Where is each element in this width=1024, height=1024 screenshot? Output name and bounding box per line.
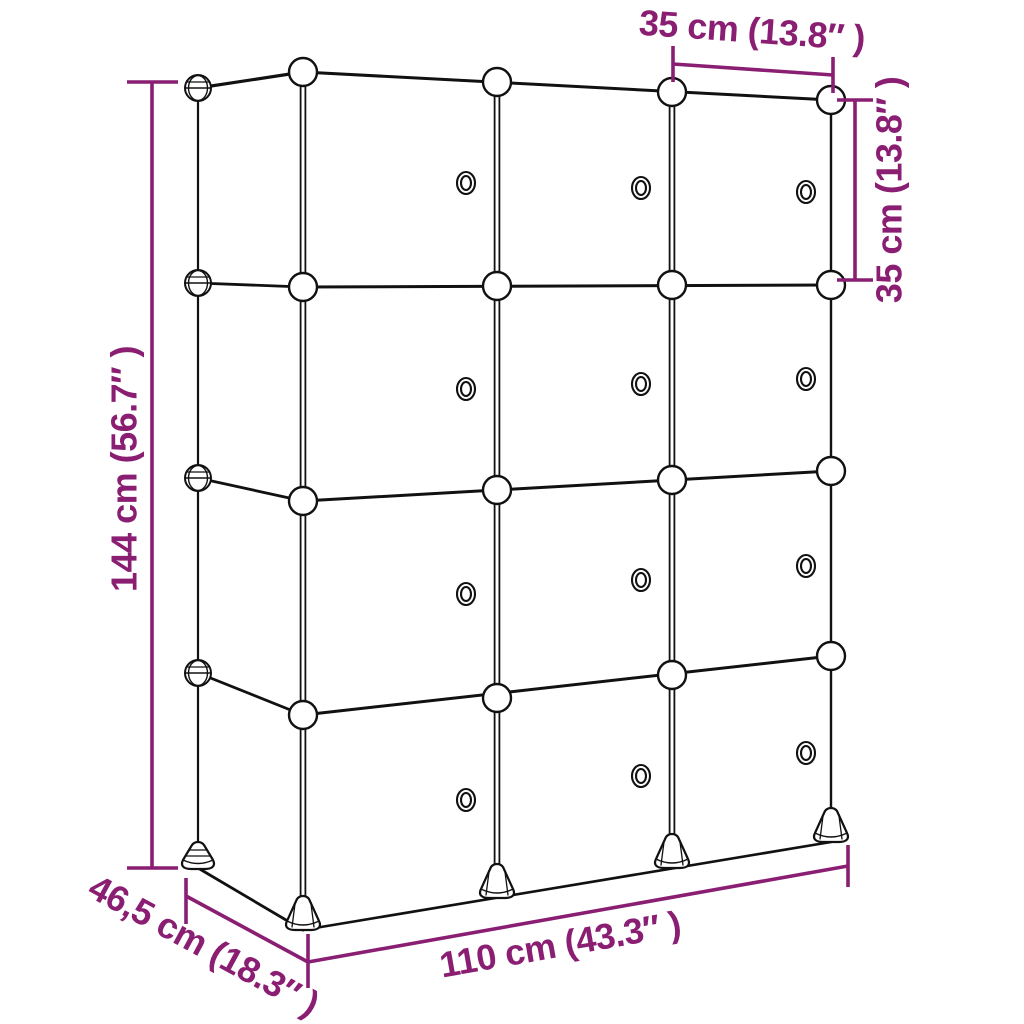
foot-icon bbox=[480, 864, 514, 898]
hatched-ball-icon bbox=[185, 660, 211, 686]
cabinet-front-horizontals bbox=[303, 72, 831, 930]
door-handle-icon bbox=[457, 583, 475, 605]
dimension-label-height-right: 35 cm (13.8″ ) bbox=[869, 77, 910, 303]
dimension-height-left: 144 cm (56.7″ ) bbox=[104, 82, 178, 868]
dimension-label-width-bottom: 110 cm (43.3″ ) bbox=[436, 903, 683, 986]
door-handle-icon bbox=[797, 742, 815, 764]
door-handle-icon bbox=[632, 569, 650, 591]
product-dimension-diagram: 144 cm (56.7″ ) 35 cm (13.8″ ) 35 cm (13… bbox=[0, 0, 1024, 1024]
dimension-width-top: 35 cm (13.8″ ) bbox=[638, 2, 867, 93]
foot-icon bbox=[182, 842, 214, 869]
dimension-height-right: 35 cm (13.8″ ) bbox=[837, 77, 910, 303]
cabinet-feet-icons bbox=[182, 808, 848, 930]
cabinet-front-verticals bbox=[301, 72, 831, 930]
door-handle-icon bbox=[632, 373, 650, 395]
hatched-ball-icon bbox=[185, 75, 211, 101]
connector-ball-icons bbox=[289, 58, 845, 729]
hatched-ball-icon bbox=[185, 465, 211, 491]
foot-icon bbox=[286, 896, 320, 930]
cube-storage-diagram: 144 cm (56.7″ ) 35 cm (13.8″ ) 35 cm (13… bbox=[0, 0, 1024, 1024]
dimension-label-height-left: 144 cm (56.7″ ) bbox=[104, 346, 145, 592]
door-handle-icon bbox=[457, 789, 475, 811]
foot-icon bbox=[814, 808, 848, 842]
door-handle-icon bbox=[457, 378, 475, 400]
door-handle-icon bbox=[632, 765, 650, 787]
hatched-ball-icon bbox=[185, 270, 211, 296]
door-handle-icon bbox=[632, 177, 650, 199]
cabinet-line-art bbox=[182, 58, 848, 930]
door-handle-icon bbox=[797, 368, 815, 390]
cabinet-side-face bbox=[198, 72, 303, 930]
dimension-label-depth: 46,5 cm (18.3″ ) bbox=[82, 866, 326, 1024]
dimension-depth: 46,5 cm (18.3″ ) bbox=[82, 866, 326, 1024]
door-handle-icon bbox=[797, 555, 815, 577]
door-handle-icon bbox=[457, 172, 475, 194]
foot-icon bbox=[655, 834, 689, 868]
door-handle-icon bbox=[797, 181, 815, 203]
